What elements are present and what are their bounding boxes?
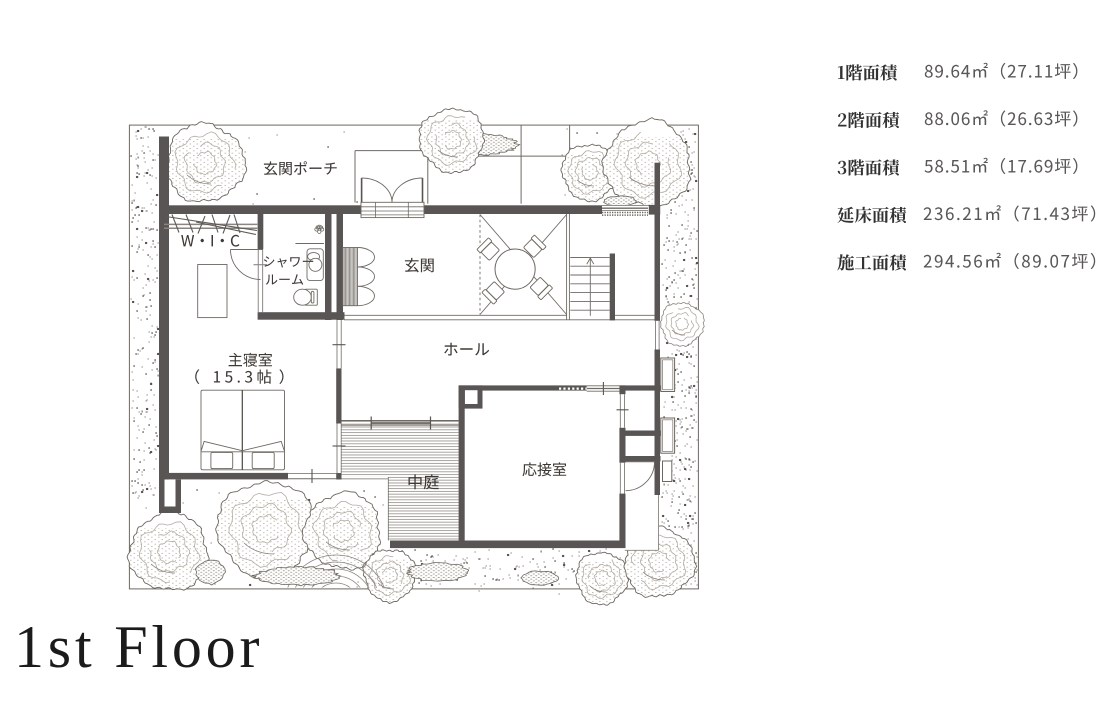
svg-text:1st Floor: 1st Floor [14, 614, 263, 680]
